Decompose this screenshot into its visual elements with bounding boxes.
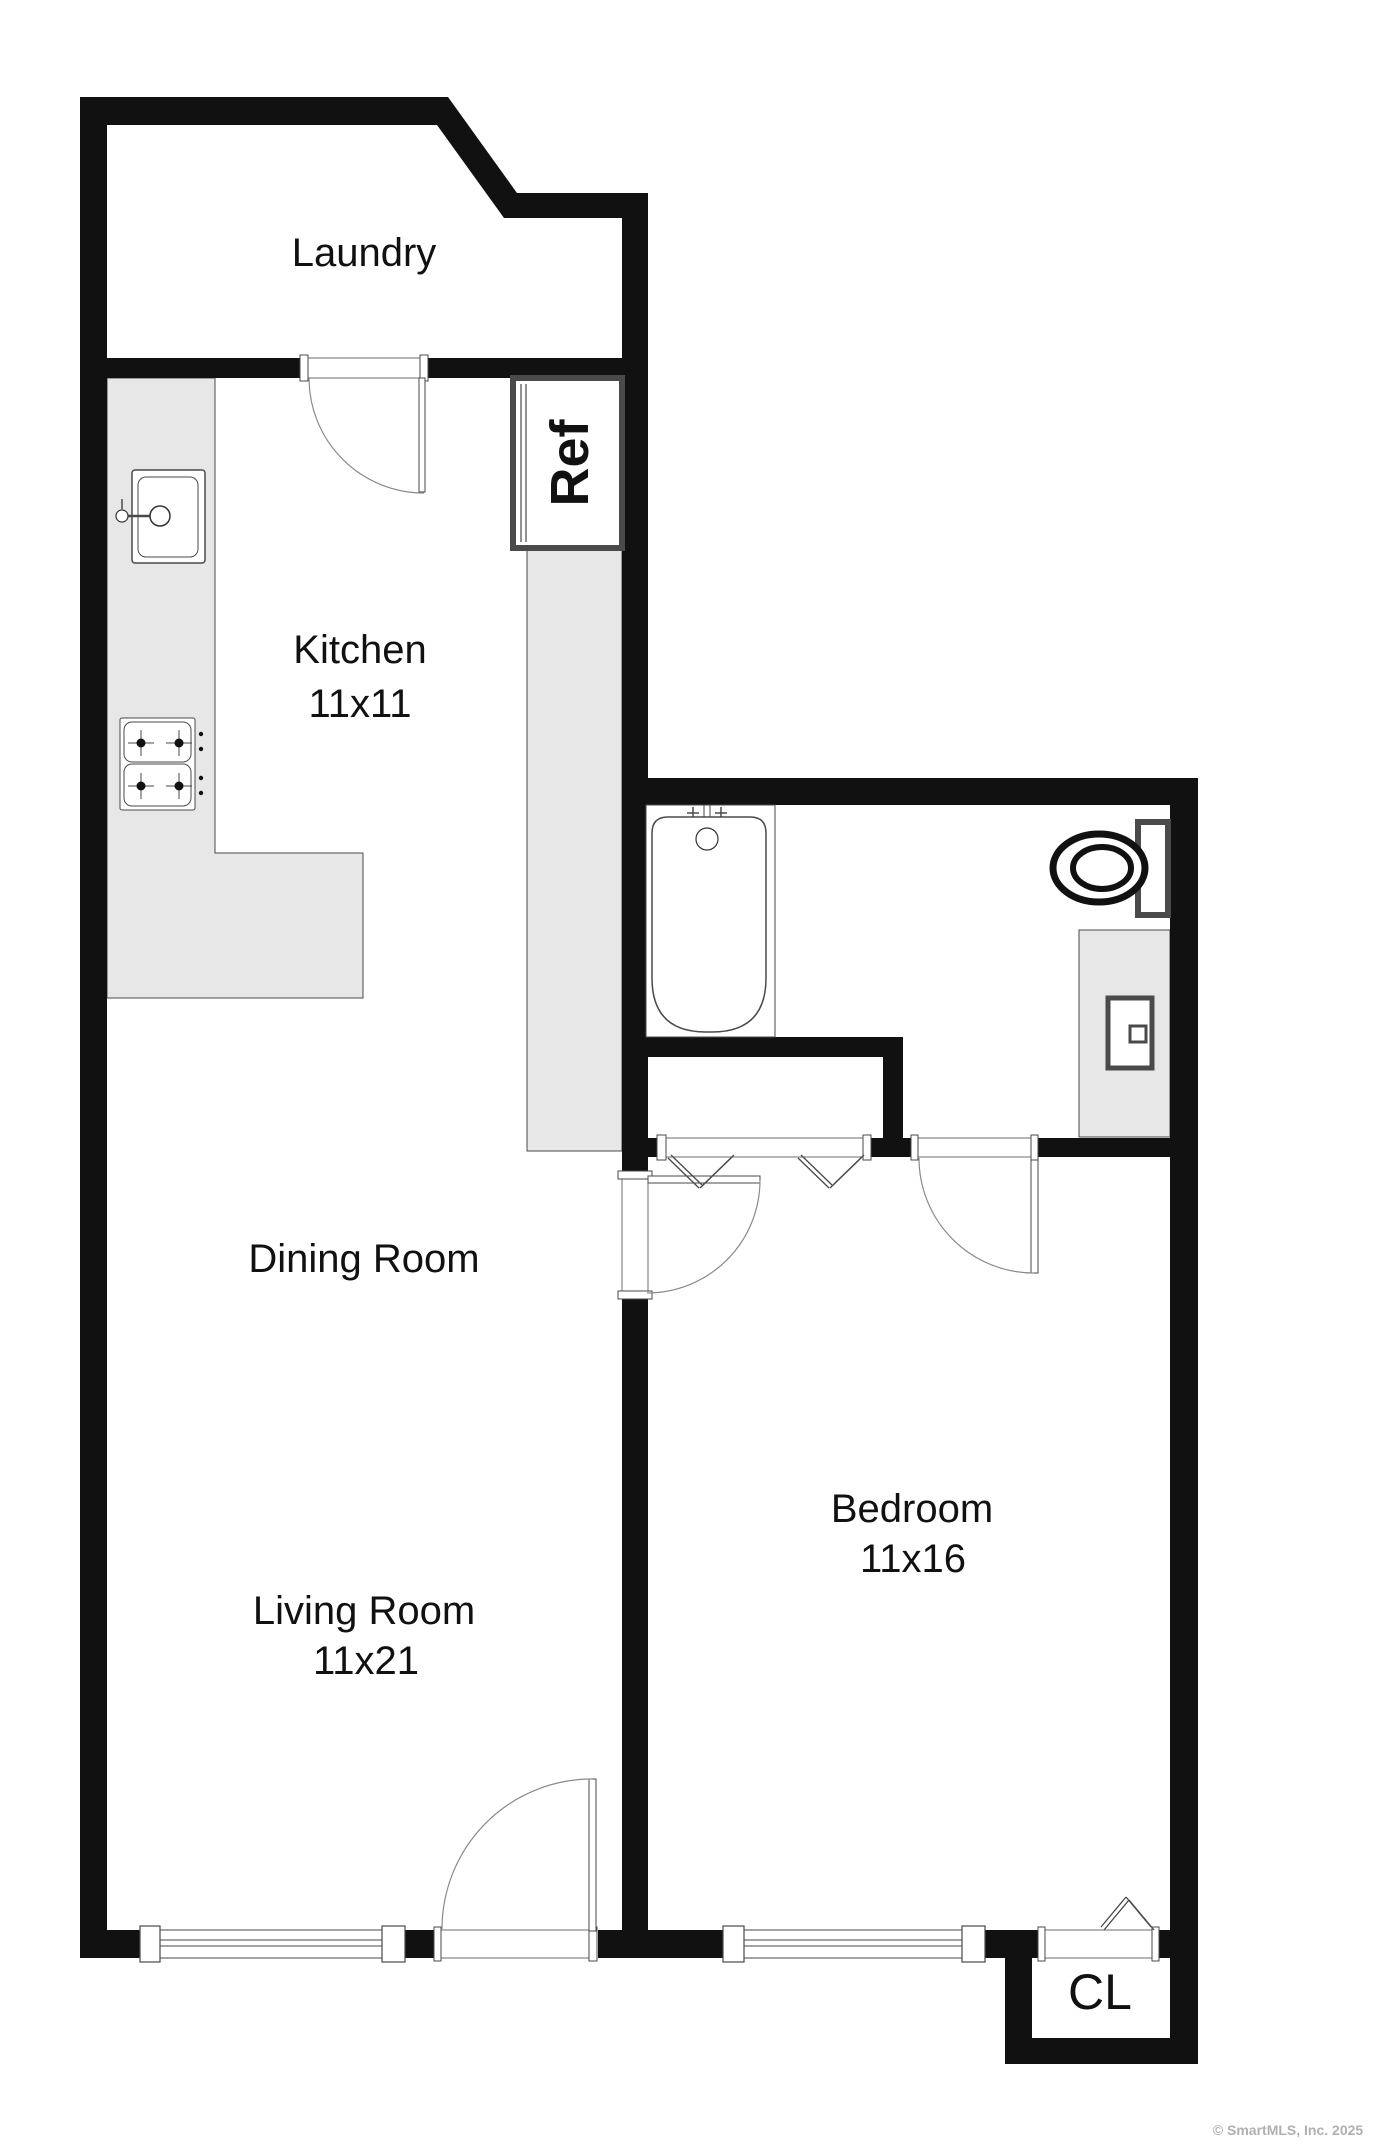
bathroom-door-post-left [911,1135,918,1160]
kitchen-faucet-head [150,506,170,526]
wall-cl-bottom [1005,2038,1198,2064]
label-living: Living Room [253,1589,475,1633]
floor-plan: LaundryKitchen11x11RefDining RoomLiving … [0,0,1379,2148]
dining-door-post-bottom [618,1291,652,1299]
entry-door-post-right [589,1927,597,1961]
wall-bathroom-top [622,778,1198,805]
stove-burner [137,782,146,791]
bifold-post-left [657,1135,666,1160]
stove-burner [175,739,184,748]
bathroom-door-post-right [1031,1135,1038,1160]
wall-bottom-b [405,1930,434,1958]
wall-bottom-e [1159,1930,1198,1958]
laundry-door-leaf [419,378,425,492]
dining-door-post-top [618,1171,652,1179]
wall-left [80,97,107,1958]
dining-door-opening [622,1178,648,1293]
wall-laundry-bottom-left [107,358,300,378]
tub-drain [696,828,718,850]
entry-door-opening [440,1930,590,1958]
wall-divider-lower [622,1293,648,1958]
stove-knob [199,747,203,751]
wall-divider-upper [622,193,648,1178]
dining-door-leaf [648,1176,760,1183]
cl-door-post-left [1038,1927,1045,1961]
label-laundry: Laundry [292,231,437,275]
wall-right [1170,778,1198,2064]
bedroom-window [744,1930,962,1958]
wall-bottom-a [80,1930,140,1958]
stove-knob [199,791,203,795]
label-watermark: © SmartMLS, Inc. 2025 [1213,2122,1364,2138]
label-bedroom: Bedroom [831,1487,993,1531]
wall-bedroom-top-a [646,1138,658,1157]
label-ref: Ref [540,418,600,506]
label-kitchen: Kitchen [293,628,426,672]
wall-bottom-c [598,1930,723,1958]
label-bedroom-size: 11x16 [860,1537,966,1581]
entry-door-post-left [434,1927,441,1961]
bathroom-door-opening [917,1138,1032,1157]
bathroom-door-leaf [1031,1160,1038,1273]
wall-bedroom-top-b [870,1138,917,1157]
floor-plan-svg: LaundryKitchen11x11RefDining RoomLiving … [0,0,1379,2148]
stove-knob [199,732,203,736]
laundry-door-post-right [420,355,428,381]
label-dining: Dining Room [248,1237,479,1281]
wall-top [80,97,448,125]
entry-door-leaf [589,1779,596,1931]
cl-door-opening [1044,1930,1153,1958]
wall-tub-bottom [622,1037,903,1057]
label-kitchen-size: 11x11 [308,682,411,726]
stove-burner [137,739,146,748]
label-cl: CL [1068,1964,1132,2020]
living-window-post-left [140,1926,160,1962]
wall-bedroom-top-c [1038,1138,1170,1157]
stove-knob [199,776,203,780]
pantry-counter [527,548,622,1151]
bedroom-window-post-right [962,1926,985,1962]
vanity-sink-knob [1130,1026,1146,1042]
laundry-door-opening [307,358,421,378]
living-window [160,1930,382,1958]
kitchen-faucet-handle [116,510,128,522]
cl-door-post-right [1152,1927,1159,1961]
stove-burner [175,782,184,791]
bedroom-window-post-left [723,1926,744,1962]
bifold-closet-opening [666,1138,863,1157]
laundry-door-post-left [300,355,308,381]
label-living-size: 11x21 [313,1639,419,1683]
living-window-post-right [382,1926,405,1962]
bifold-post-right [863,1135,871,1160]
wall-bottom-d [985,1930,1039,1958]
